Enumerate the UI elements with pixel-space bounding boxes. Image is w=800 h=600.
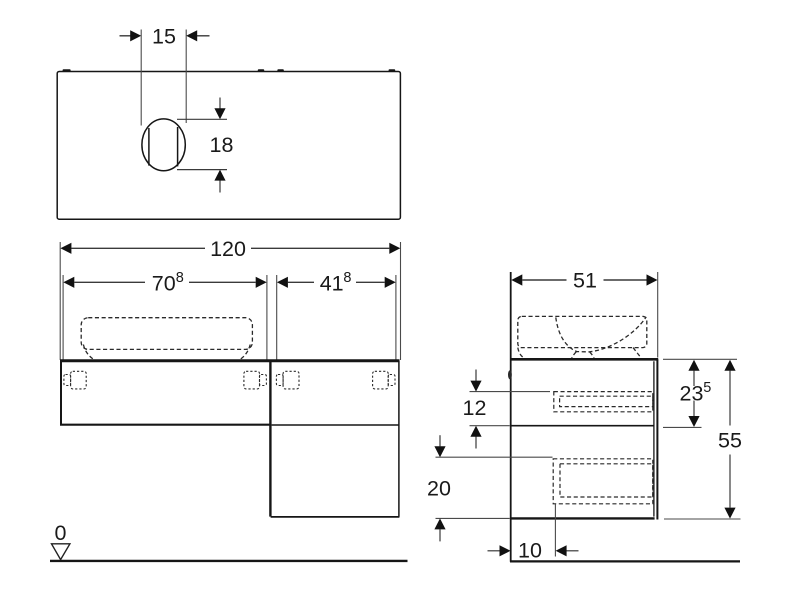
svg-text:23: 23 [680, 381, 704, 405]
svg-text:15: 15 [152, 25, 176, 49]
svg-text:8: 8 [343, 270, 351, 286]
svg-text:5: 5 [703, 380, 711, 396]
svg-text:8: 8 [176, 270, 184, 286]
svg-text:55: 55 [718, 428, 742, 452]
svg-text:120: 120 [210, 237, 246, 261]
svg-text:51: 51 [573, 269, 597, 293]
svg-text:12: 12 [463, 396, 487, 420]
svg-text:70: 70 [152, 271, 176, 295]
svg-text:10: 10 [518, 538, 542, 562]
svg-text:41: 41 [320, 271, 344, 295]
svg-text:20: 20 [427, 477, 451, 501]
svg-text:18: 18 [210, 133, 234, 157]
svg-text:0: 0 [55, 521, 67, 545]
